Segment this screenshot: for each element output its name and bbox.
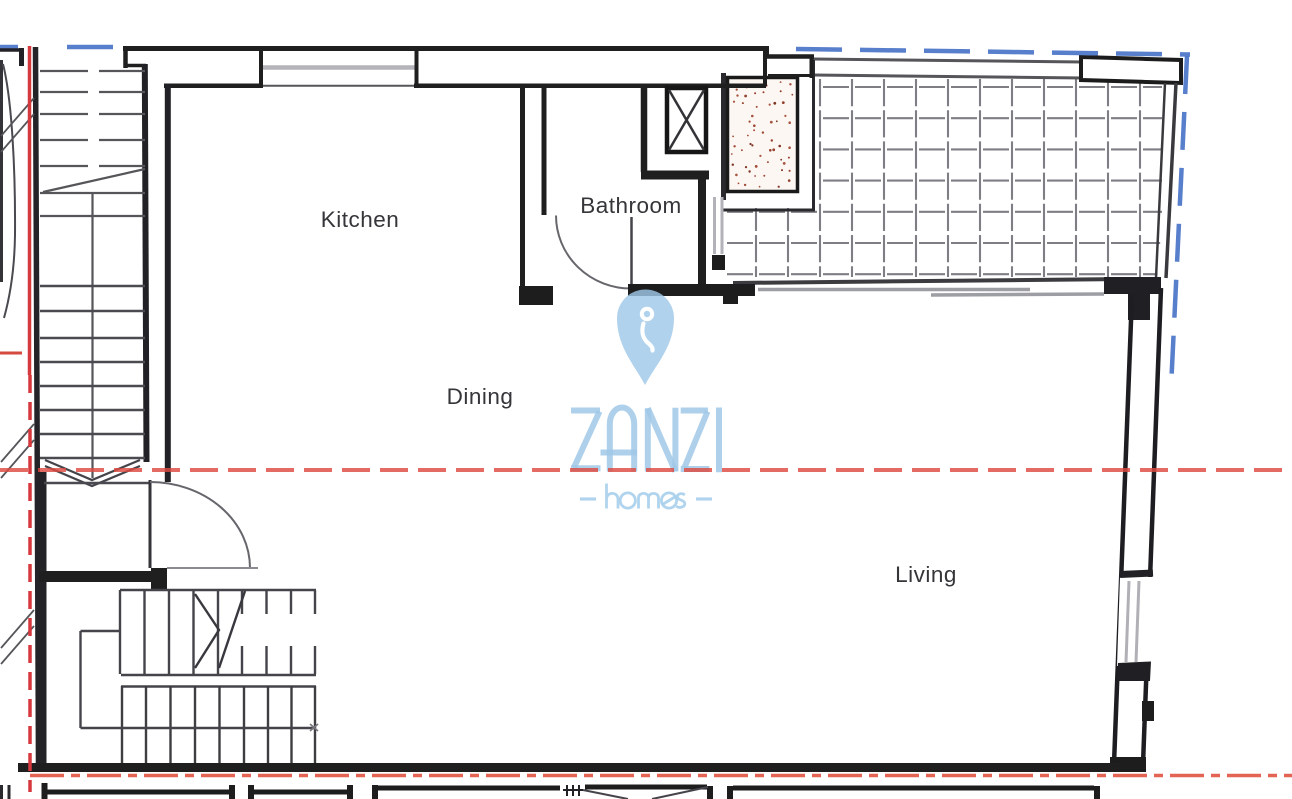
svg-text:Dining: Dining xyxy=(447,384,514,409)
svg-text:Bathroom: Bathroom xyxy=(580,193,682,218)
svg-text:Living: Living xyxy=(895,562,957,587)
svg-text:Kitchen: Kitchen xyxy=(321,207,400,232)
